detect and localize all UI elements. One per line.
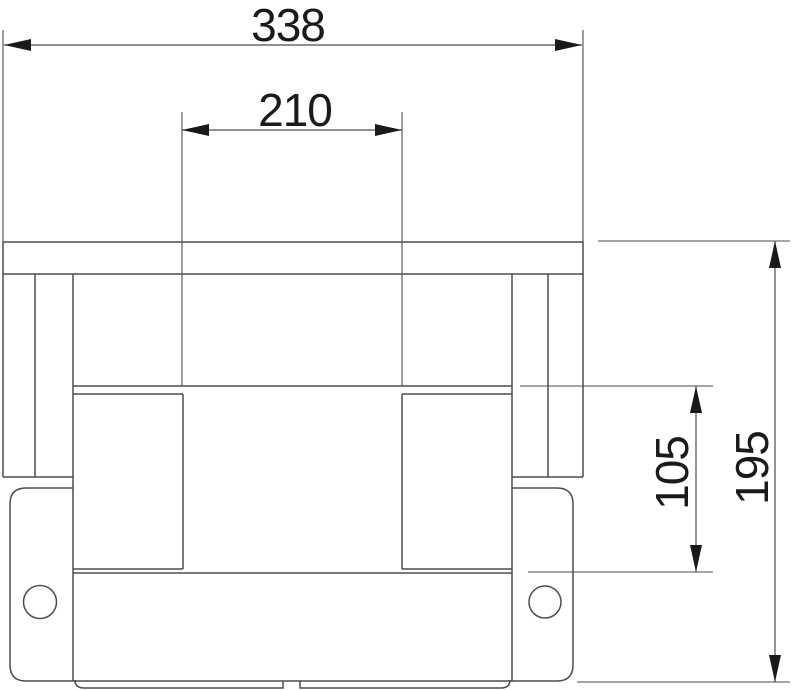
arrow-up-icon	[690, 386, 702, 413]
left-bracket	[10, 488, 73, 681]
right-column	[512, 274, 583, 477]
arrow-left-icon	[4, 39, 31, 51]
left-column	[3, 274, 73, 477]
dimension-step-height: 105	[520, 386, 713, 572]
arrow-down-icon	[690, 545, 702, 572]
mounting-hole-right	[529, 586, 561, 618]
right-bracket	[512, 488, 573, 681]
arrow-right-icon	[555, 39, 582, 51]
arrow-right-icon	[375, 124, 402, 136]
top-flange	[3, 242, 583, 274]
mounting-hole-left	[24, 586, 57, 619]
dimension-inner-width: 210	[182, 84, 402, 386]
dimension-label-step-height: 105	[646, 436, 698, 510]
arrow-up-icon	[769, 241, 781, 268]
main-body	[73, 274, 512, 688]
dimension-label-overall-height: 195	[726, 431, 778, 505]
dimension-drawing: 338 210 105 195	[0, 0, 794, 690]
part-outline	[3, 242, 583, 688]
dimension-label-inner-width: 210	[258, 84, 332, 136]
dimension-label-overall-width: 338	[251, 0, 325, 51]
technical-drawing-canvas: 338 210 105 195	[0, 0, 794, 690]
arrow-left-icon	[182, 124, 209, 136]
arrow-down-icon	[769, 655, 781, 682]
